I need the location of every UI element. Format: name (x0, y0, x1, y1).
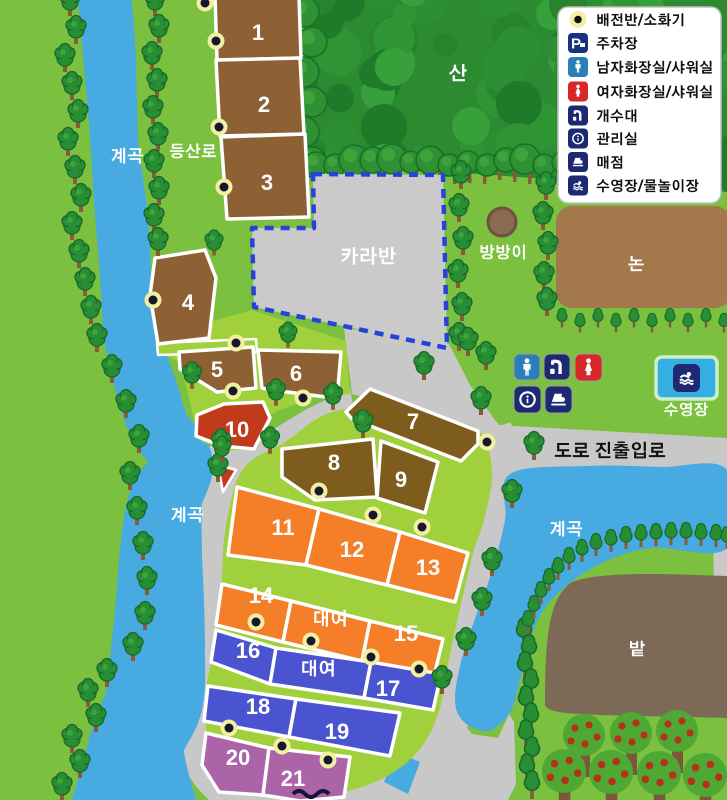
svg-text:6: 6 (290, 361, 302, 386)
svg-text:2: 2 (258, 92, 270, 117)
svg-text:20: 20 (226, 745, 250, 770)
svg-text:11: 11 (271, 515, 294, 540)
svg-text:5: 5 (211, 357, 223, 382)
svg-text:18: 18 (246, 694, 270, 719)
svg-text:3: 3 (261, 170, 273, 195)
svg-text:4: 4 (182, 290, 195, 315)
svg-text:P: P (571, 36, 581, 53)
svg-text:8: 8 (328, 450, 340, 475)
svg-text:17: 17 (376, 676, 400, 701)
svg-text:21: 21 (281, 766, 305, 791)
svg-text:1: 1 (252, 20, 264, 45)
svg-text:19: 19 (325, 719, 349, 744)
svg-text:13: 13 (416, 555, 440, 580)
svg-text:14: 14 (249, 583, 274, 608)
svg-text:15: 15 (394, 621, 418, 646)
svg-text:16: 16 (236, 638, 260, 663)
svg-text:7: 7 (407, 409, 419, 434)
svg-text:9: 9 (395, 467, 407, 492)
svg-text:12: 12 (340, 537, 364, 562)
